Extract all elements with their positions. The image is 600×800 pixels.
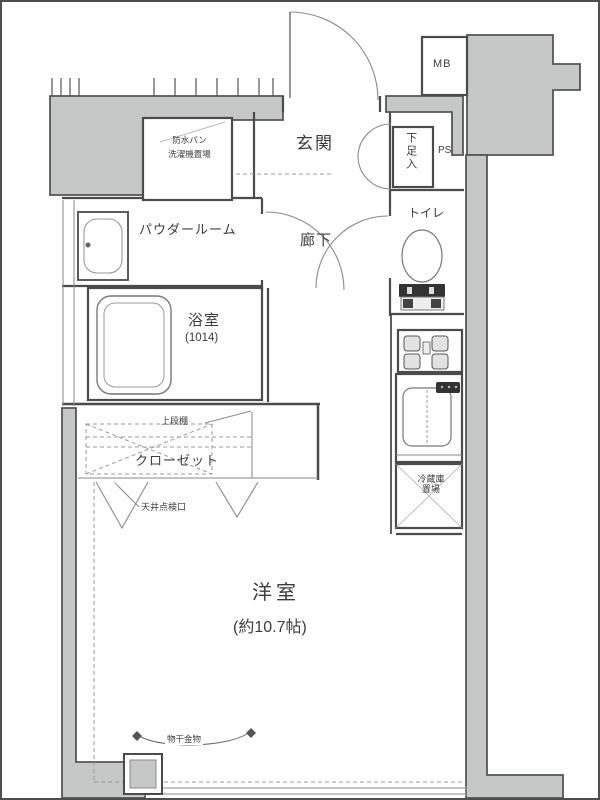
label-bathroom-size: (1014) (185, 332, 218, 345)
label-entrance: 玄関 (296, 134, 334, 154)
exterior-hatch-ticks (52, 78, 273, 96)
label-refrigerator: 冷蔵庫 置場 (400, 474, 462, 495)
door-swings (96, 12, 391, 528)
stove (398, 330, 462, 372)
label-shoe-cabinet: 下足入 (404, 132, 417, 171)
toilet-fixture (399, 230, 445, 310)
label-western-room: 洋室 (252, 582, 300, 605)
label-washer-line1: 防水パン (145, 136, 234, 146)
toilet-door-arc (316, 216, 388, 288)
bathroom-box (88, 288, 262, 400)
shoe-cabinet-door-arc-bottom (358, 156, 391, 189)
label-pipe-space: PS (438, 145, 451, 157)
label-fridge-line1: 冷蔵庫 (400, 474, 462, 484)
powder-room-door-arc (266, 212, 344, 290)
label-powder-room: パウダールーム (139, 223, 237, 238)
label-hallway: 廊下 (300, 232, 332, 249)
label-laundry-hook: 物干金物 (165, 735, 203, 745)
label-washer-line2: 洗濯機置場 (145, 150, 234, 160)
label-bathroom: 浴室 (188, 312, 220, 329)
label-closet: クローゼット (135, 454, 219, 469)
entrance-door-arc (290, 12, 378, 100)
shoe-cabinet-door-arc-top (358, 124, 391, 156)
label-upper-shelf: 上段棚 (161, 416, 188, 426)
kitchen-sink (396, 374, 462, 462)
label-washer-space: 防水パン 洗濯機置場 (145, 136, 234, 164)
label-ceiling-access: 天井点検口 (141, 502, 186, 512)
pillar (124, 754, 162, 794)
label-meter-box: MB (433, 58, 452, 71)
label-fridge-line2: 置場 (400, 484, 462, 494)
label-toilet: トイレ (408, 207, 444, 221)
closet-door-mark-right (216, 482, 258, 517)
bathtub (97, 296, 171, 394)
floorplan-canvas: 玄関 廊下 トイレ パウダールーム MB PS 下足入 防水パン 洗濯機置場 浴… (0, 0, 600, 800)
label-western-room-size: (約10.7帖) (233, 619, 307, 637)
wash-basin (78, 212, 128, 280)
floorplan-linework (2, 2, 598, 798)
